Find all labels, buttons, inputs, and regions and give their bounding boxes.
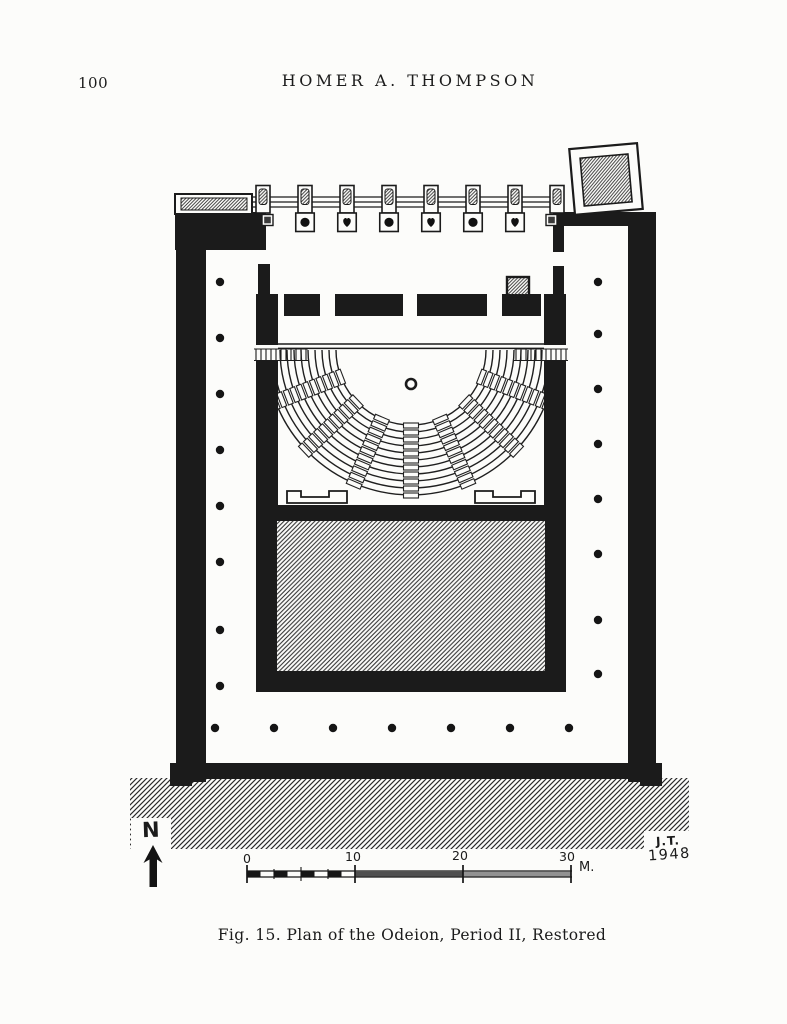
north-arrow bbox=[144, 845, 163, 887]
porch-pier bbox=[256, 186, 270, 214]
east-outer-wall bbox=[628, 212, 656, 782]
east-door-jamb-upper bbox=[553, 226, 564, 252]
column-plinths bbox=[262, 213, 557, 232]
odeion-plan-drawing bbox=[0, 0, 787, 1024]
east-hall-wall-upper bbox=[544, 294, 566, 345]
scale-unit-label: M. bbox=[579, 860, 594, 875]
south-outer-wall bbox=[176, 763, 656, 779]
west-outer-wall bbox=[176, 212, 206, 782]
column-plinth bbox=[506, 213, 525, 232]
column-plinth bbox=[422, 213, 441, 232]
figure-caption: Fig. 15. Plan of the Odeion, Period II, … bbox=[218, 926, 606, 944]
porch-pier bbox=[550, 186, 564, 214]
column-plinth bbox=[380, 213, 399, 232]
scanned-page: { "page": { "number": "100", "header": "… bbox=[0, 0, 787, 1024]
page-number: 100 bbox=[78, 74, 108, 92]
north-label: N bbox=[142, 818, 160, 843]
scale-checker-cells bbox=[247, 871, 342, 877]
southeast-wall-foot bbox=[640, 763, 662, 786]
southwest-wall-foot bbox=[170, 763, 192, 786]
east-footing-bracket bbox=[475, 491, 535, 503]
scale-label-30: 30 bbox=[559, 849, 575, 864]
scale-band-10-20 bbox=[355, 872, 463, 877]
scale-label-20: 20 bbox=[452, 848, 468, 863]
east-parodos-stair bbox=[514, 349, 568, 361]
scale-bar bbox=[247, 865, 572, 883]
west-parodos-stair bbox=[254, 349, 308, 361]
north-wall-dashed bbox=[284, 294, 541, 316]
porch-pier bbox=[424, 186, 438, 214]
column-plinth bbox=[464, 213, 483, 232]
scale-label-10: 10 bbox=[345, 849, 361, 864]
northwest-corner-block bbox=[175, 212, 266, 250]
west-door-jamb bbox=[258, 264, 270, 294]
porch-pier bbox=[466, 186, 480, 214]
porch-pier bbox=[340, 186, 354, 214]
east-door-jamb-lower bbox=[553, 266, 564, 294]
northeast-wall-bar bbox=[553, 212, 656, 226]
south-column-row bbox=[211, 724, 573, 732]
porch-piers bbox=[256, 186, 564, 214]
east-hall-wall-lower bbox=[544, 361, 566, 506]
east-column-row bbox=[594, 278, 602, 678]
statue-base bbox=[175, 194, 252, 214]
stairway bbox=[404, 414, 419, 508]
west-column-row bbox=[216, 278, 224, 690]
west-hall-wall-lower bbox=[256, 361, 278, 506]
stair-block bbox=[507, 277, 529, 296]
stage-front-line bbox=[278, 344, 544, 348]
south-road-hatched-band bbox=[130, 778, 690, 850]
porch-pier bbox=[298, 186, 312, 214]
anta-block bbox=[262, 215, 273, 226]
porch-pier bbox=[508, 186, 522, 214]
column-plinth bbox=[296, 213, 315, 232]
orchestra-center-mark bbox=[406, 379, 416, 389]
west-footing-bracket bbox=[287, 491, 347, 503]
page-header-author: HOMER A. THOMPSON bbox=[282, 71, 538, 90]
stage-block bbox=[256, 505, 566, 692]
scale-label-0: 0 bbox=[243, 851, 251, 866]
northeast-monument-base bbox=[569, 143, 642, 215]
scale-band-20-30 bbox=[463, 872, 571, 877]
west-hall-wall-upper bbox=[256, 294, 278, 345]
anta-block bbox=[546, 215, 557, 226]
signature-year: 1948 bbox=[647, 846, 691, 865]
cavea bbox=[261, 350, 561, 508]
column-plinth bbox=[338, 213, 357, 232]
porch-pier bbox=[382, 186, 396, 214]
